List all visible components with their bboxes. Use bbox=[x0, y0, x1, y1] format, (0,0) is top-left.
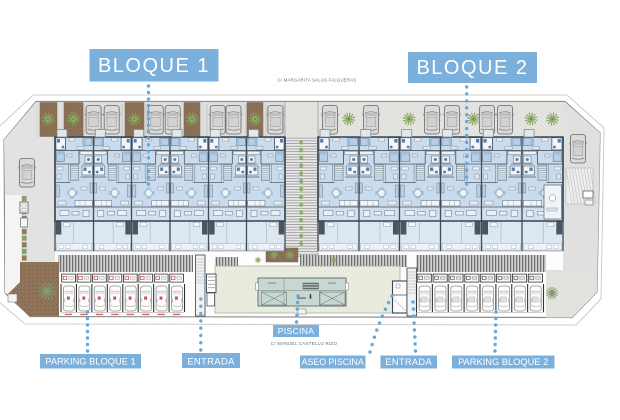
svg-text:PARKING BLOQUE 1: PARKING BLOQUE 1 bbox=[45, 357, 135, 367]
svg-text:BLOQUE 1: BLOQUE 1 bbox=[98, 55, 210, 77]
svg-text:C/ MARGARITA SALAS FALGUERAS: C/ MARGARITA SALAS FALGUERAS bbox=[277, 78, 356, 83]
svg-text:ASEO PISCINA: ASEO PISCINA bbox=[302, 357, 364, 367]
svg-text:BLOQUE 2: BLOQUE 2 bbox=[416, 57, 528, 79]
svg-text:PARKING BLOQUE 2: PARKING BLOQUE 2 bbox=[458, 357, 548, 367]
svg-text:C/ MANUEL CASTELLO RIZO: C/ MANUEL CASTELLO RIZO bbox=[271, 341, 338, 346]
svg-text:ENTRADA: ENTRADA bbox=[385, 357, 432, 367]
svg-text:PISCINA: PISCINA bbox=[278, 326, 314, 336]
svg-text:ENTRADA: ENTRADA bbox=[187, 357, 235, 368]
